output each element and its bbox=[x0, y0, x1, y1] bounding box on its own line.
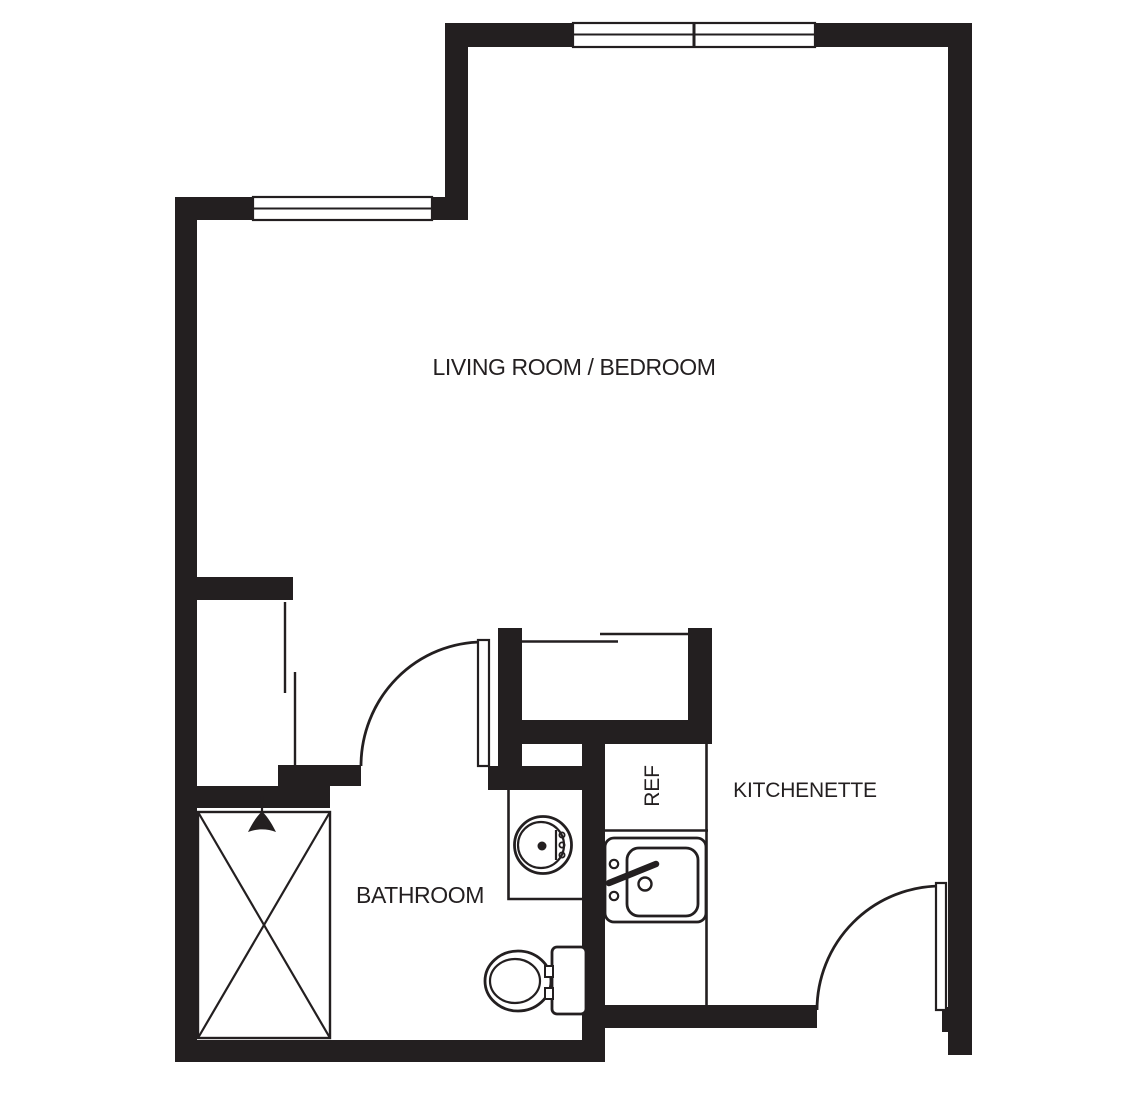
toilet bbox=[485, 947, 586, 1014]
bathroom-vanity bbox=[509, 790, 586, 899]
entry-door bbox=[817, 883, 946, 1010]
bathroom-sink-drain-icon bbox=[538, 842, 547, 851]
wall-bath-bottom bbox=[175, 1040, 605, 1062]
wall-kitchen-bottom bbox=[582, 1005, 817, 1028]
wall-bath-door-jamb bbox=[278, 765, 361, 786]
kitchenette-label: KITCHENETTE bbox=[733, 779, 877, 802]
entry-door-swing-arc bbox=[817, 886, 941, 1010]
bathroom-door-swing-arc bbox=[361, 642, 483, 766]
bathroom-door-leaf bbox=[478, 640, 489, 766]
sliding-closet-doors-left bbox=[285, 602, 295, 766]
vanity-counter-edge bbox=[509, 790, 586, 899]
floor-plan-page: LIVING ROOM / BEDROOM BATHROOM KITCHENET… bbox=[0, 0, 1142, 1097]
wall-closet-stub bbox=[197, 577, 293, 600]
window-top bbox=[573, 23, 815, 47]
bathroom-label: BATHROOM bbox=[356, 882, 484, 908]
wall-upper-connector bbox=[445, 23, 468, 220]
sliding-closet-doors-top bbox=[522, 634, 688, 642]
shower-head-icon bbox=[248, 812, 276, 833]
wall-east bbox=[948, 23, 972, 1055]
wall-alcove-west-pier bbox=[498, 628, 522, 768]
window-left bbox=[253, 197, 432, 220]
toilet-tank bbox=[552, 947, 586, 1014]
bathroom-sink-hole-icon bbox=[559, 842, 564, 847]
toilet-hinge-icon bbox=[545, 988, 553, 999]
kitchen-sink bbox=[605, 838, 706, 922]
wall-west bbox=[175, 197, 197, 1062]
walls bbox=[175, 23, 972, 1062]
entry-door-leaf bbox=[936, 883, 946, 1010]
wall-alcove-south bbox=[498, 720, 711, 744]
refrigerator-label: REF bbox=[641, 765, 664, 806]
bathroom-door bbox=[361, 640, 489, 766]
wall-bath-top-east bbox=[488, 766, 585, 790]
wall-upperleft-east bbox=[432, 197, 468, 220]
wall-bath-top-west bbox=[175, 786, 330, 808]
toilet-hinge-icon bbox=[545, 966, 553, 977]
floor-plan-drawing: LIVING ROOM / BEDROOM BATHROOM KITCHENET… bbox=[0, 0, 1142, 1097]
shower-stall bbox=[198, 796, 330, 1038]
living-room-label: LIVING ROOM / BEDROOM bbox=[433, 354, 716, 380]
